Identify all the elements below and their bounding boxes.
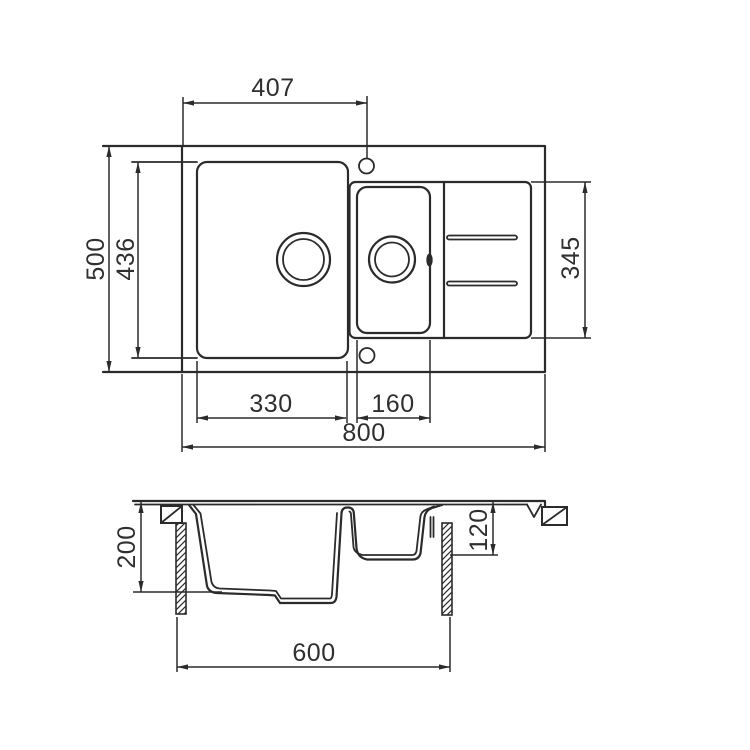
cabinet-wall-right (442, 523, 452, 615)
dim-label-345: 345 (557, 236, 585, 279)
dim-label-500: 500 (82, 237, 110, 280)
overflow-mark (426, 254, 432, 267)
dim-label-120: 120 (465, 508, 493, 551)
cabinet-wall-left (176, 523, 186, 614)
dim-label-800: 800 (342, 419, 385, 447)
dim-label-407: 407 (251, 74, 294, 102)
dim-label-200: 200 (113, 525, 141, 568)
clamp-right (542, 507, 567, 525)
dim-label-330: 330 (249, 390, 292, 418)
dim-label-160: 160 (371, 390, 414, 418)
canvas-background (0, 0, 750, 750)
dim-label-436: 436 (112, 237, 140, 280)
dim-label-600: 600 (292, 639, 335, 667)
technical-drawing: 407 500 436 345 (0, 0, 750, 750)
clamp-left (161, 506, 182, 523)
